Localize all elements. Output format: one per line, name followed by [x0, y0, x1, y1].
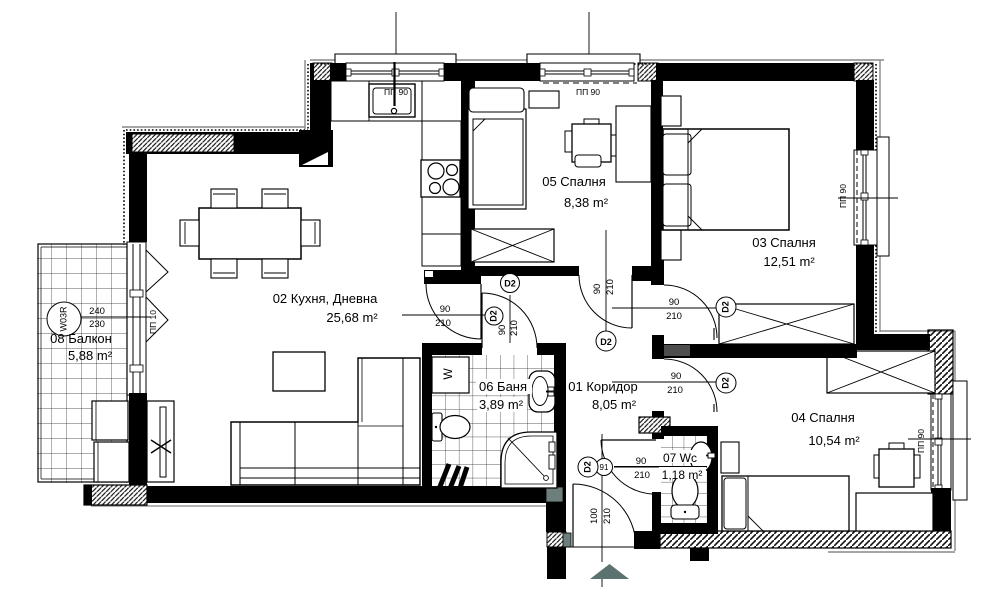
svg-text:90: 90: [669, 297, 680, 308]
svg-text:D2: D2: [504, 279, 516, 289]
svg-text:07 Wc: 07 Wc: [663, 451, 697, 465]
svg-text:05 Спалня: 05 Спалня: [542, 174, 606, 189]
svg-text:D2: D2: [720, 301, 730, 313]
svg-text:100: 100: [589, 508, 600, 524]
svg-text:04 Спалня: 04 Спалня: [791, 410, 855, 425]
svg-text:210: 210: [666, 311, 682, 322]
svg-text:90: 90: [636, 456, 647, 467]
svg-text:D2: D2: [582, 461, 592, 473]
svg-text:5,88 m²: 5,88 m²: [68, 348, 113, 363]
svg-text:ПП 10: ПП 10: [148, 310, 158, 334]
svg-text:W03R: W03R: [58, 306, 68, 332]
svg-text:ПП 90: ПП 90: [916, 429, 926, 453]
svg-text:08 Балкон: 08 Балкон: [50, 331, 112, 346]
svg-text:210: 210: [634, 470, 650, 481]
svg-text:D2: D2: [600, 337, 612, 347]
svg-text:ПП 90: ПП 90: [576, 87, 600, 97]
svg-text:240: 240: [89, 306, 105, 317]
svg-text:210: 210: [667, 385, 683, 396]
svg-text:90: 90: [671, 371, 682, 382]
svg-text:210: 210: [602, 508, 613, 524]
svg-text:D2: D2: [488, 310, 498, 322]
svg-text:D2: D2: [720, 377, 730, 389]
svg-text:210: 210: [605, 279, 616, 295]
svg-text:230: 230: [89, 319, 105, 330]
svg-text:90: 90: [497, 325, 508, 336]
svg-text:210: 210: [509, 320, 520, 336]
svg-text:8,38 m²: 8,38 m²: [564, 195, 609, 210]
svg-text:06 Баня: 06 Баня: [479, 379, 527, 394]
svg-text:01 Коридор: 01 Коридор: [568, 379, 637, 394]
svg-text:02 Кухня, Дневна: 02 Кухня, Дневна: [273, 291, 378, 306]
svg-text:25,68 m²: 25,68 m²: [326, 310, 378, 325]
svg-text:12,51 m²: 12,51 m²: [763, 254, 815, 269]
svg-text:ПП 90: ПП 90: [838, 184, 848, 208]
svg-text:W: W: [441, 368, 455, 380]
svg-text:91: 91: [600, 463, 609, 472]
svg-text:90: 90: [592, 284, 603, 295]
svg-text:8,05 m²: 8,05 m²: [592, 397, 637, 412]
svg-text:ПП 90: ПП 90: [384, 87, 408, 97]
svg-text:1,18 m²: 1,18 m²: [662, 468, 703, 482]
svg-text:90: 90: [440, 304, 451, 315]
svg-text:03 Спалня: 03 Спалня: [752, 235, 816, 250]
svg-text:210: 210: [435, 318, 451, 329]
svg-text:10,54 m²: 10,54 m²: [808, 433, 860, 448]
svg-text:3,89 m²: 3,89 m²: [479, 397, 524, 412]
